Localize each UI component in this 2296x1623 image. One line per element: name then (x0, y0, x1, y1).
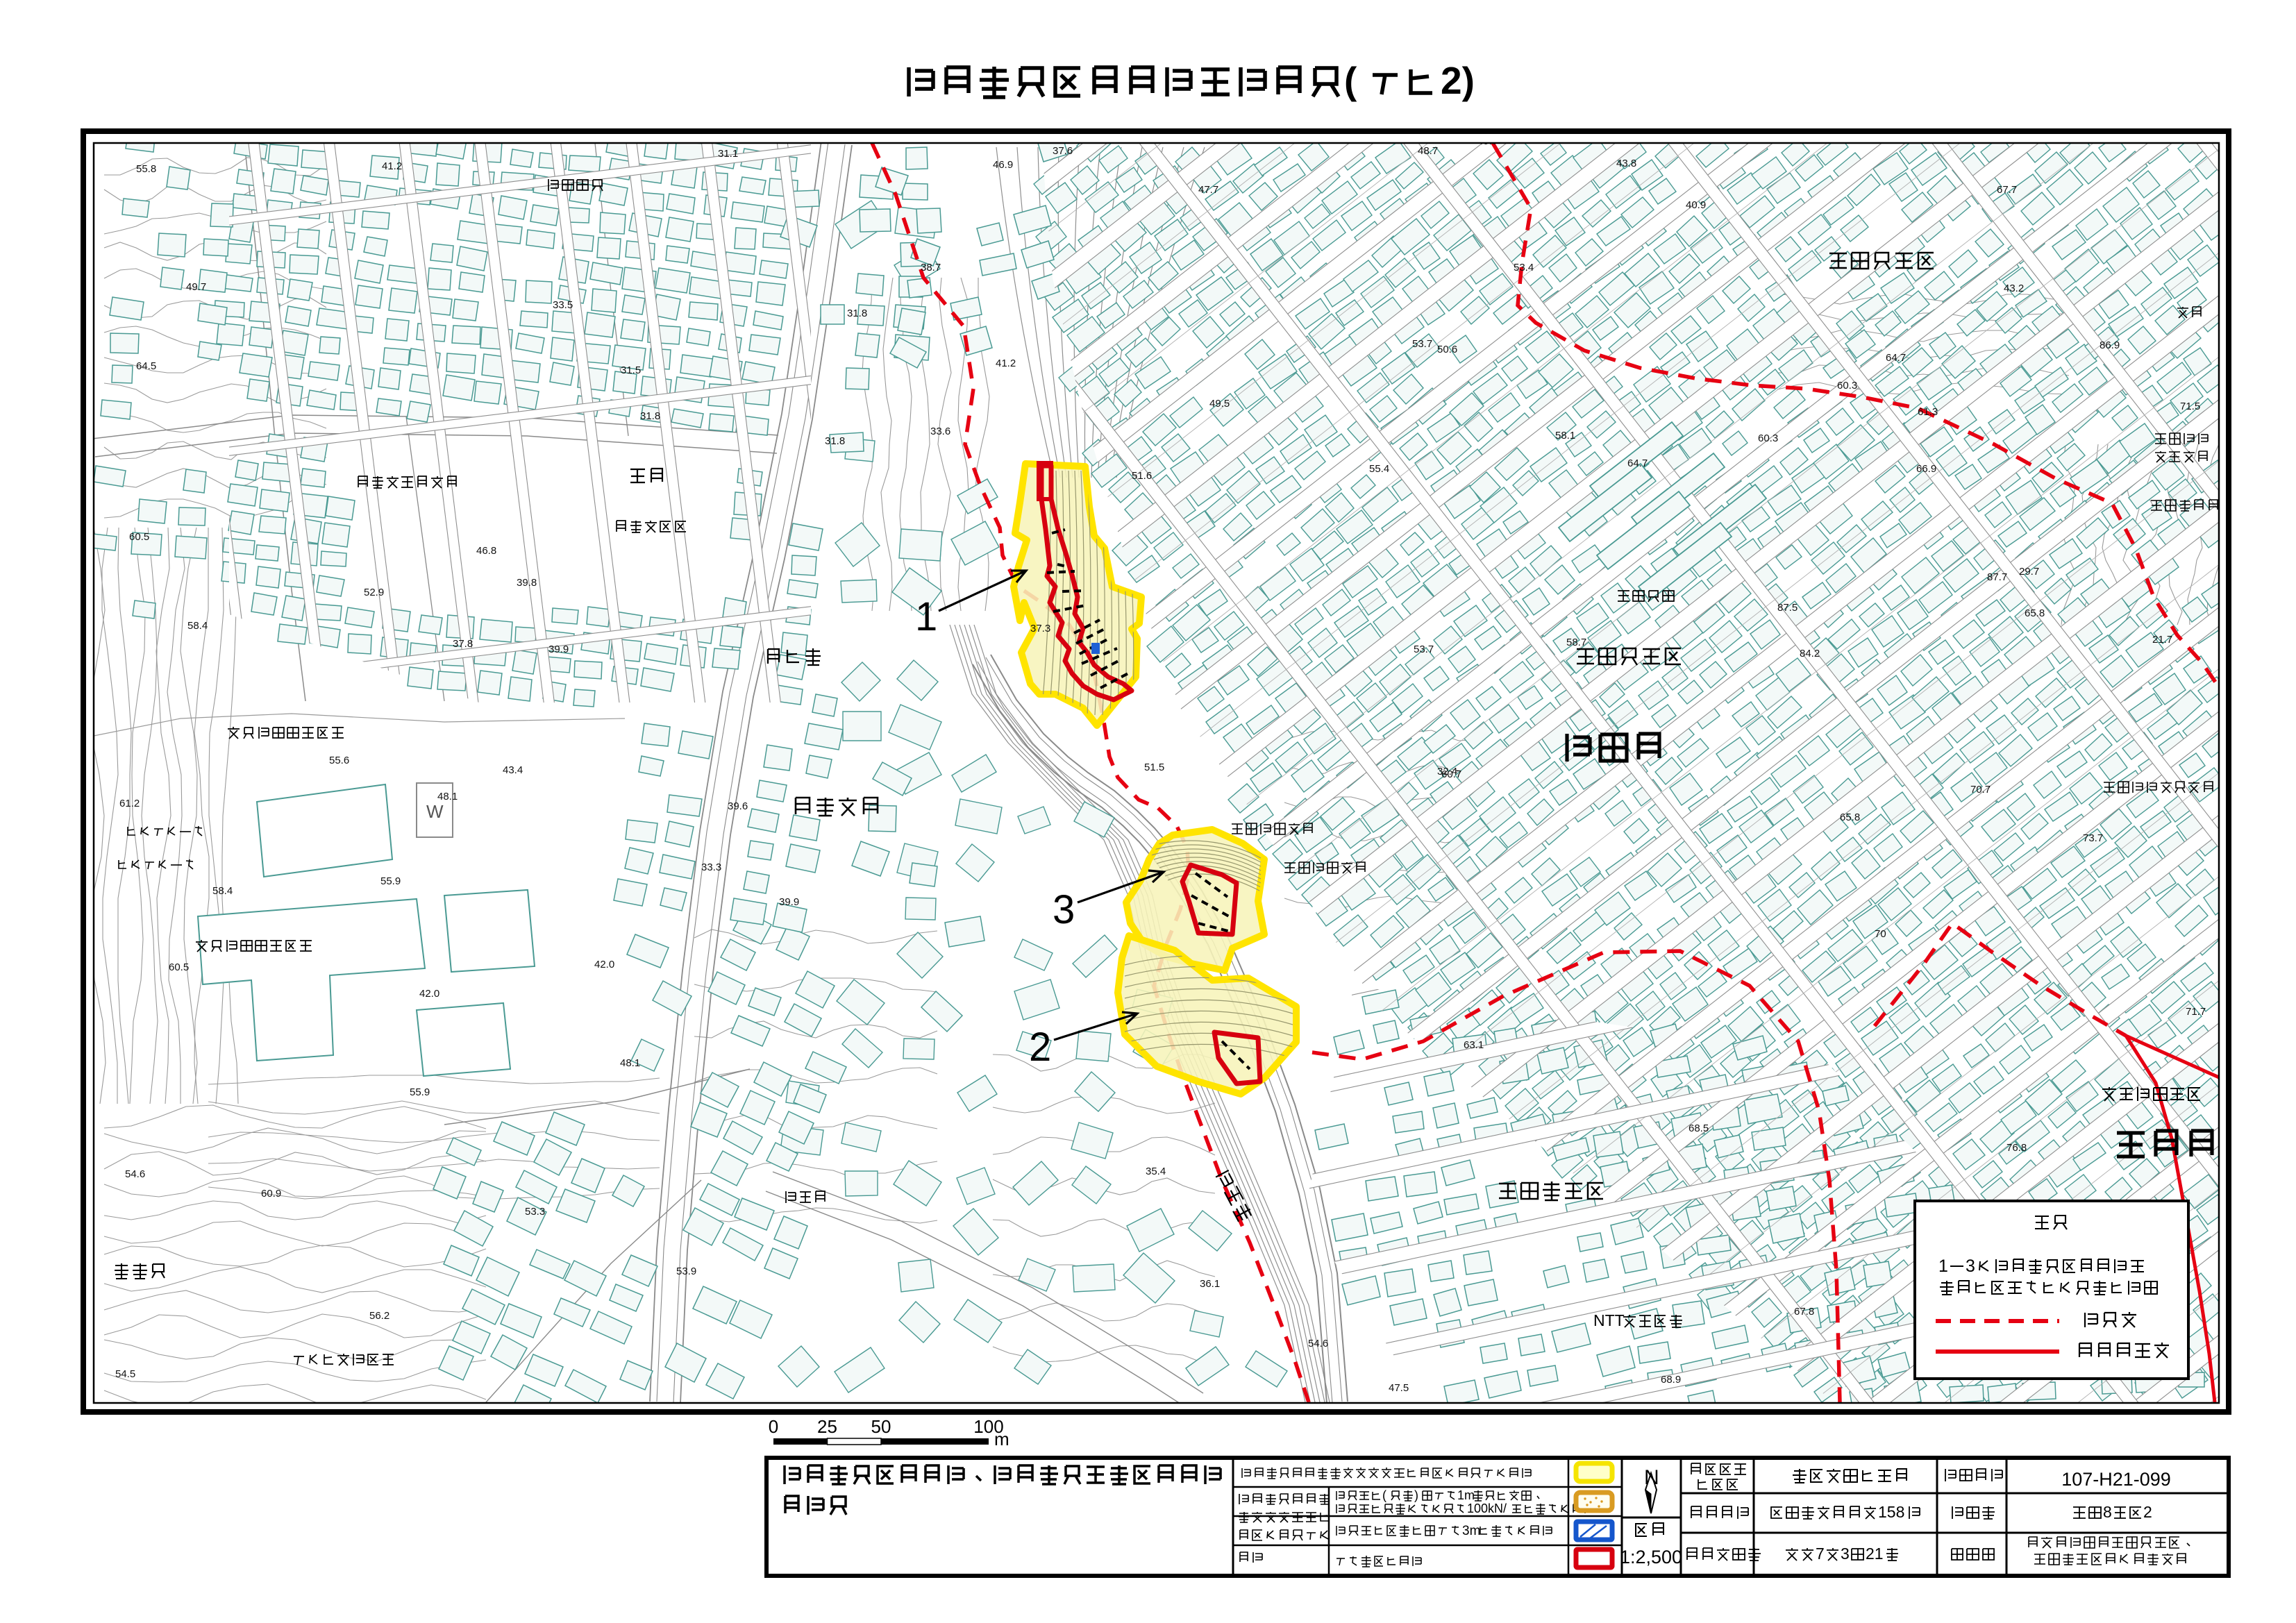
svg-text:49.7: 49.7 (186, 281, 206, 293)
svg-text:54.6: 54.6 (1308, 1338, 1328, 1349)
svg-text:33.6: 33.6 (930, 426, 950, 437)
svg-text:40.9: 40.9 (1686, 199, 1706, 211)
svg-text:84.2: 84.2 (1800, 648, 1820, 659)
svg-text:70.7: 70.7 (1970, 784, 1991, 796)
svg-text:8: 8 (2103, 1503, 2112, 1521)
svg-text:3: 3 (1053, 887, 1075, 932)
svg-text:58.7: 58.7 (1566, 637, 1586, 648)
svg-text:65.8: 65.8 (1840, 811, 1860, 823)
svg-text:63.1: 63.1 (1464, 1039, 1484, 1051)
svg-text:39.6: 39.6 (728, 800, 748, 812)
svg-text:31.8: 31.8 (847, 308, 867, 319)
svg-text:87.5: 87.5 (1777, 602, 1798, 614)
svg-text:55.8: 55.8 (136, 163, 156, 175)
svg-text:48.1: 48.1 (620, 1057, 640, 1069)
svg-text:70: 70 (1875, 928, 1886, 940)
svg-text:68.5: 68.5 (1689, 1122, 1709, 1134)
svg-text:39.9: 39.9 (779, 896, 799, 908)
svg-text:53.3: 53.3 (525, 1206, 545, 1218)
svg-text:31.8: 31.8 (640, 410, 660, 422)
svg-text:68.9: 68.9 (1661, 1374, 1681, 1386)
svg-text:2: 2 (2143, 1503, 2152, 1521)
svg-text:32.4: 32.4 (1437, 766, 1457, 777)
svg-text:21.7: 21.7 (2152, 634, 2172, 646)
svg-text:55.9: 55.9 (380, 875, 401, 887)
svg-text:1: 1 (915, 594, 937, 639)
svg-text:43.8: 43.8 (1616, 158, 1636, 169)
svg-text:61.3: 61.3 (1918, 406, 1938, 418)
svg-text:60.5: 60.5 (129, 531, 149, 543)
svg-text:158: 158 (1878, 1503, 1904, 1521)
svg-text:73.7: 73.7 (2083, 832, 2103, 844)
svg-text:39.9: 39.9 (548, 644, 569, 655)
svg-text:54.5: 54.5 (115, 1368, 135, 1380)
svg-text:33.5: 33.5 (553, 299, 573, 311)
svg-text:1: 1 (1938, 1256, 1948, 1276)
svg-text:38.7: 38.7 (921, 262, 941, 274)
svg-text:60.5: 60.5 (169, 961, 189, 973)
svg-text:31.1: 31.1 (718, 148, 738, 160)
svg-text:37.6: 37.6 (1053, 145, 1073, 157)
svg-text:71.5: 71.5 (2180, 401, 2200, 412)
svg-text:2: 2 (1029, 1025, 1051, 1070)
svg-text:1m: 1m (1457, 1488, 1475, 1502)
svg-text:2): 2) (1441, 59, 1475, 102)
svg-text:100kN/: 100kN/ (1467, 1502, 1507, 1515)
svg-text:53.9: 53.9 (676, 1265, 696, 1277)
svg-text:33.3: 33.3 (701, 861, 721, 873)
svg-text:55.9: 55.9 (410, 1086, 430, 1098)
svg-text:60.3: 60.3 (1758, 432, 1778, 444)
svg-text:3m: 3m (1462, 1524, 1480, 1538)
svg-text:56.2: 56.2 (369, 1310, 389, 1322)
svg-text:29.7: 29.7 (2019, 566, 2039, 578)
svg-text:71.7: 71.7 (2186, 1006, 2206, 1018)
svg-text:55.6: 55.6 (329, 755, 349, 766)
svg-text:47.5: 47.5 (1389, 1382, 1409, 1394)
svg-text:43.4: 43.4 (503, 764, 523, 776)
svg-text:35.4: 35.4 (1146, 1166, 1166, 1177)
svg-text:66.9: 66.9 (1916, 463, 1936, 475)
svg-text:58.1: 58.1 (1555, 430, 1575, 442)
svg-text:m: m (994, 1429, 1009, 1449)
svg-text:53.4: 53.4 (1514, 262, 1534, 274)
svg-text:42.0: 42.0 (594, 959, 614, 970)
svg-text:3: 3 (1966, 1256, 1975, 1276)
svg-text:60.9: 60.9 (261, 1188, 281, 1200)
svg-text:1:2,500: 1:2,500 (1620, 1547, 1682, 1567)
svg-text:48.7: 48.7 (1418, 145, 1438, 157)
svg-text:52.9: 52.9 (364, 587, 384, 598)
svg-text:86.9: 86.9 (2100, 339, 2120, 351)
svg-text:67.8: 67.8 (1794, 1306, 1814, 1318)
svg-text:107-H21-099: 107-H21-099 (2061, 1469, 2171, 1490)
svg-text:31.8: 31.8 (825, 435, 845, 447)
svg-text:37.8: 37.8 (453, 638, 473, 650)
svg-text:64.7: 64.7 (1886, 352, 1906, 364)
svg-text:(: ( (1344, 59, 1357, 102)
svg-text:7: 7 (1816, 1545, 1825, 1563)
svg-text:54.6: 54.6 (125, 1168, 145, 1180)
svg-text:53.7: 53.7 (1414, 644, 1434, 655)
svg-text:48.1: 48.1 (437, 791, 458, 802)
svg-text:64.7: 64.7 (1627, 457, 1648, 469)
svg-text:64.5: 64.5 (136, 360, 156, 372)
svg-text:25: 25 (817, 1416, 837, 1437)
svg-text:(: ( (1382, 1488, 1386, 1502)
svg-text:W: W (426, 801, 444, 822)
svg-text:37.3: 37.3 (1030, 623, 1050, 634)
svg-text:46.9: 46.9 (993, 159, 1013, 171)
svg-text:65.8: 65.8 (2025, 607, 2045, 619)
svg-text:41.2: 41.2 (996, 358, 1016, 369)
svg-text:51.6: 51.6 (1132, 470, 1152, 482)
svg-text:61.2: 61.2 (119, 798, 140, 809)
svg-text:60.3: 60.3 (1837, 380, 1857, 392)
svg-text:49.5: 49.5 (1209, 398, 1230, 410)
svg-text:51.5: 51.5 (1144, 762, 1164, 773)
svg-text:43.2: 43.2 (2004, 283, 2024, 294)
svg-text:50: 50 (871, 1416, 891, 1437)
svg-text:67.7: 67.7 (1997, 184, 2017, 196)
svg-text:41.2: 41.2 (382, 160, 402, 172)
svg-text:31.5: 31.5 (621, 364, 641, 376)
svg-text:58.4: 58.4 (212, 885, 233, 897)
svg-text:58.4: 58.4 (187, 620, 208, 632)
svg-text:36.1: 36.1 (1200, 1278, 1220, 1290)
svg-text:53.7: 53.7 (1412, 338, 1432, 350)
svg-text:46.8: 46.8 (476, 545, 496, 557)
svg-text:42.0: 42.0 (419, 988, 439, 1000)
svg-text:NTT: NTT (1593, 1311, 1625, 1329)
svg-text:87.7: 87.7 (1987, 571, 2007, 583)
svg-text:39.8: 39.8 (517, 577, 537, 589)
svg-text:): ) (1414, 1488, 1418, 1502)
svg-text:50.6: 50.6 (1437, 344, 1457, 355)
svg-text:55.4: 55.4 (1369, 463, 1389, 475)
svg-text:21: 21 (1866, 1545, 1884, 1563)
svg-text:3: 3 (1841, 1545, 1850, 1563)
svg-text:76.8: 76.8 (2006, 1142, 2027, 1154)
svg-text:47.7: 47.7 (1198, 184, 1218, 196)
svg-text:0: 0 (769, 1416, 778, 1437)
